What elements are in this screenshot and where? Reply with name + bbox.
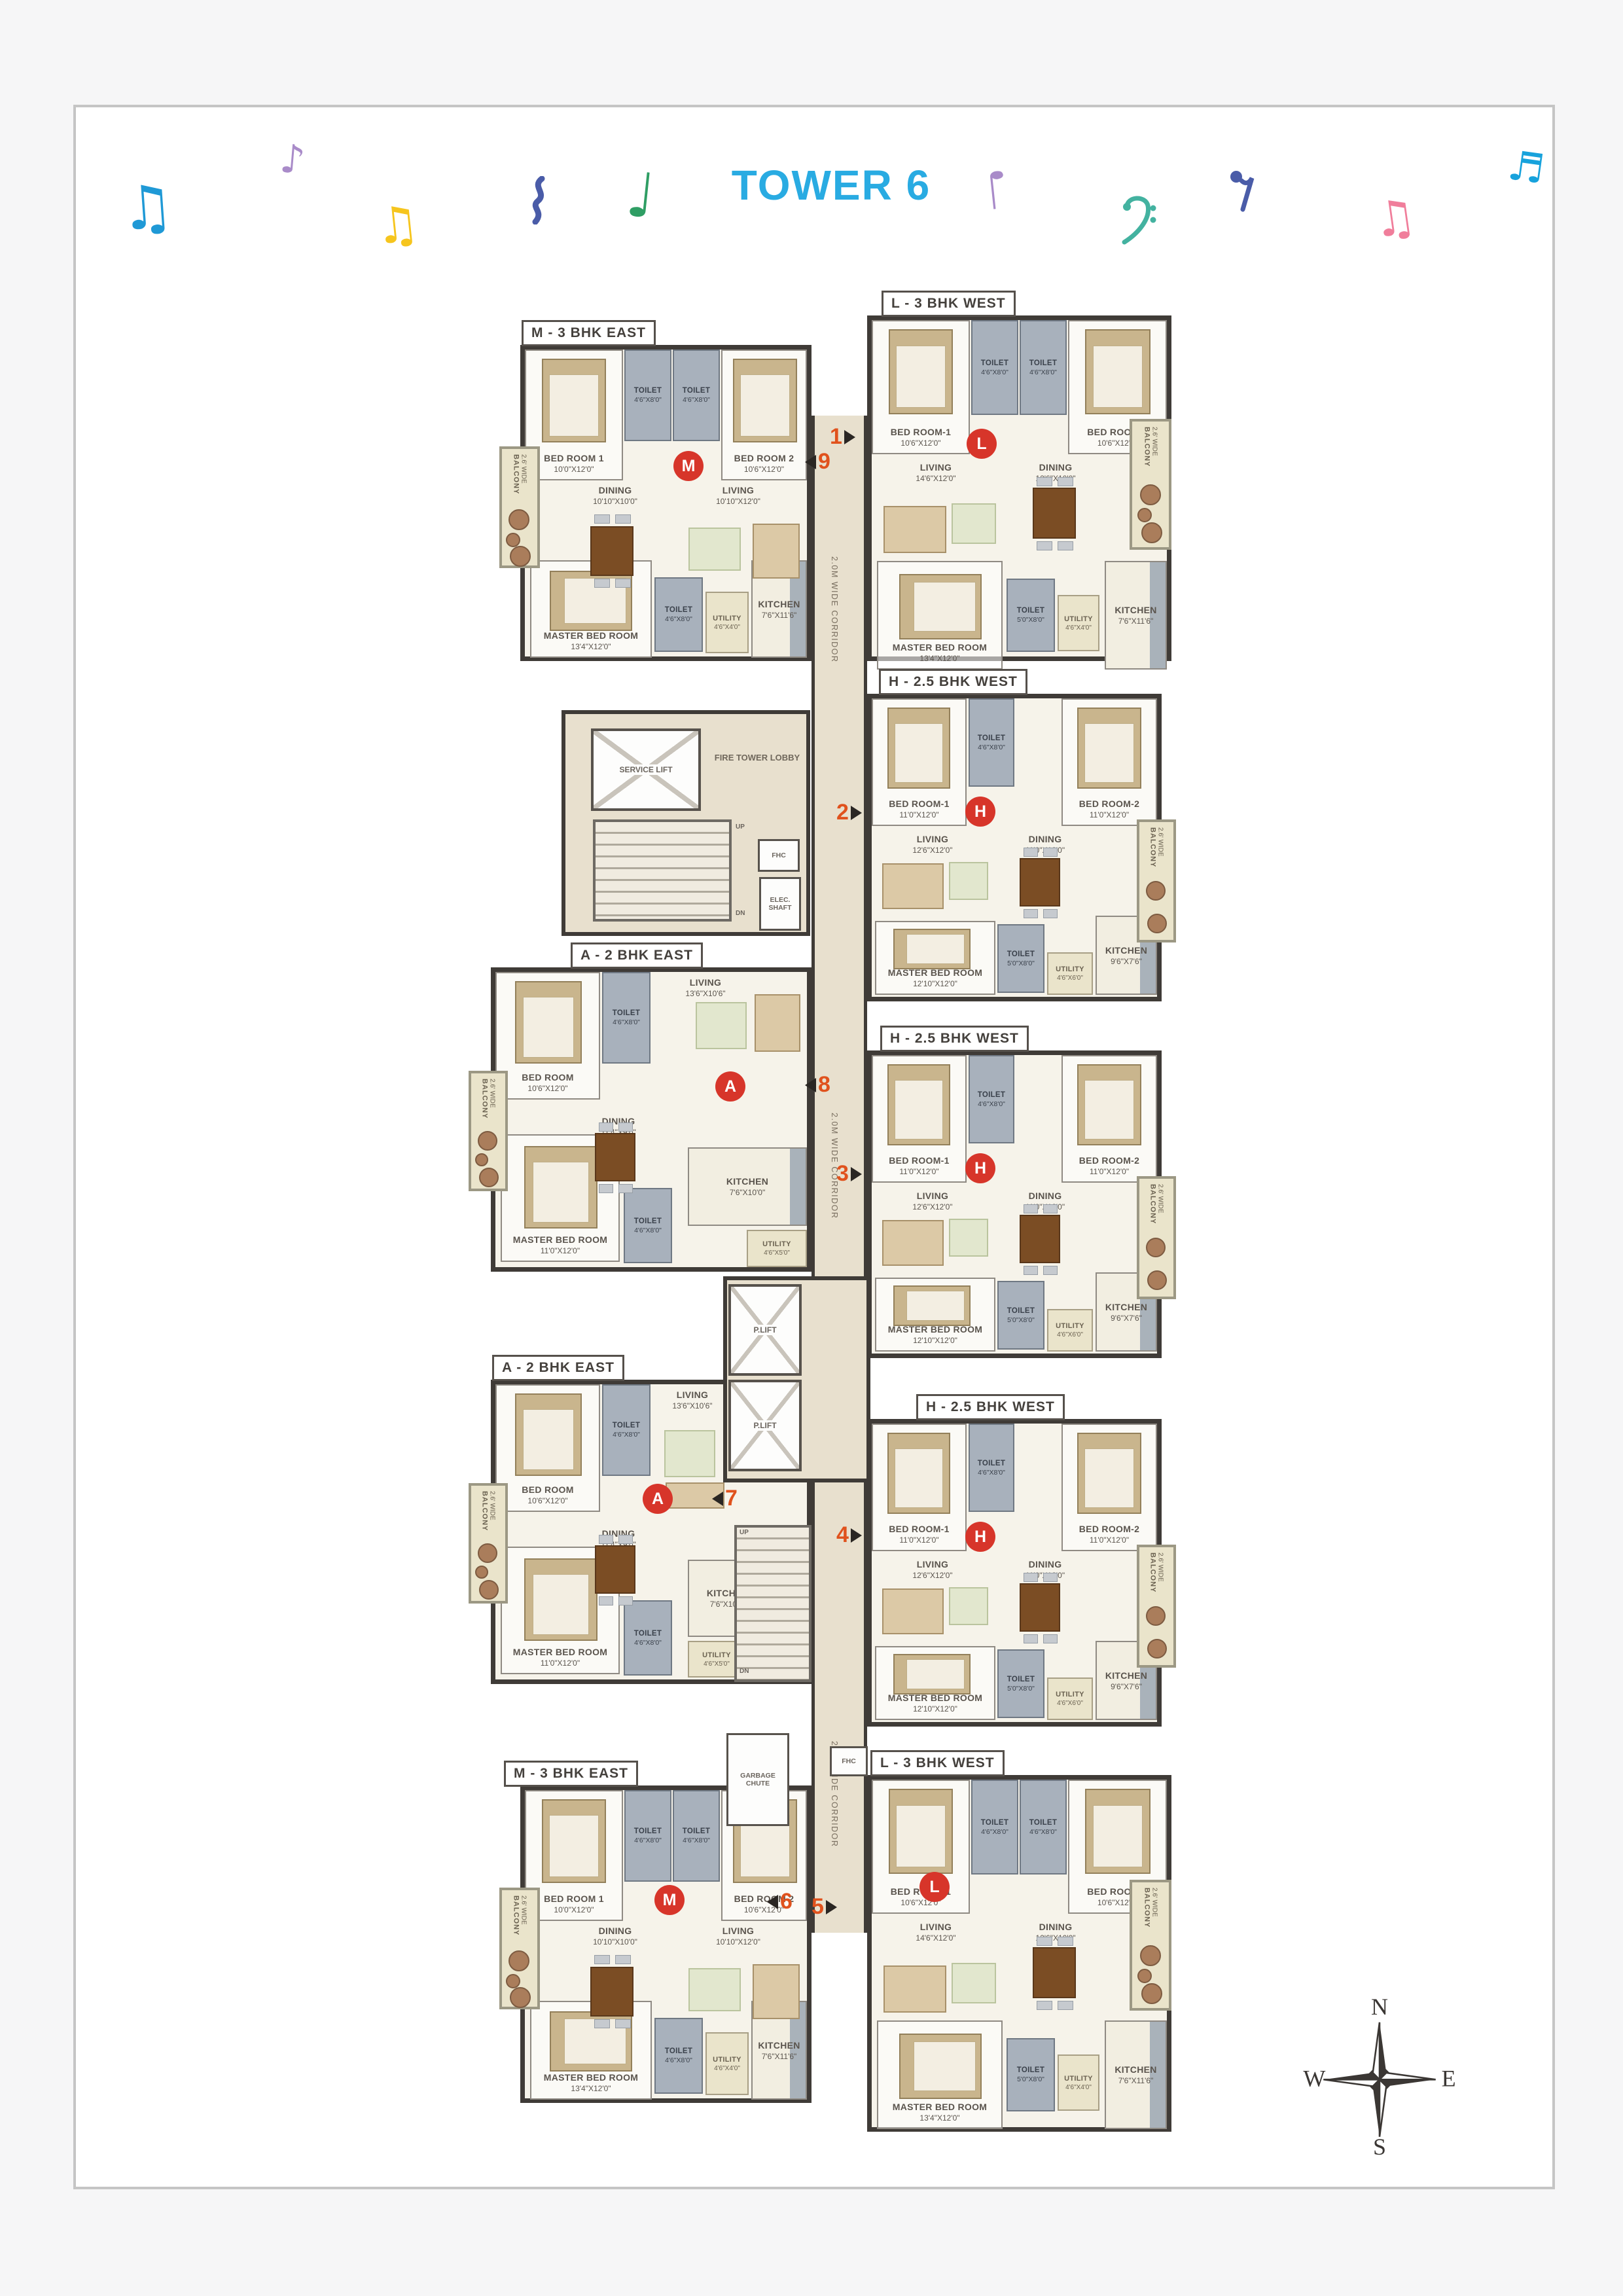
dining-table-icon	[1020, 1583, 1060, 1632]
chair-icon	[599, 1122, 613, 1132]
rug-icon	[664, 1430, 715, 1477]
room-toilet: TOILET4'6"X8'0"	[654, 577, 703, 652]
flat-number-marker: 1	[830, 424, 855, 450]
bed-icon	[1085, 1789, 1150, 1874]
unit-h-2p5bhk-west-1: BED ROOM-111'0"X12'0" TOILET4'6"X8'0" BE…	[867, 694, 1162, 1001]
bed-icon	[515, 981, 582, 1064]
music-note-icon: ♪	[278, 139, 306, 180]
room-utility: UTILITY4'6"X6'0"	[1047, 1309, 1093, 1352]
room-toilet: TOILET4'6"X8'0"	[969, 698, 1014, 787]
room-toilet: TOILET4'6"X8'0"	[673, 1790, 720, 1882]
chair-icon	[618, 1535, 633, 1544]
room-bed-room-1: BED ROOM-110'6"X12'0"	[872, 320, 970, 454]
room-bed-room-1: BED ROOM-111'0"X12'0"	[872, 1055, 967, 1183]
chair-icon	[1024, 1204, 1038, 1213]
balcony-chair-icon	[1140, 484, 1161, 505]
unit-m-3bhk-east-1: BED ROOM 110'0"X12'0" TOILET4'6"X8'0" TO…	[520, 345, 811, 661]
room-balcony: BALCONY2.6' WIDE	[469, 1483, 508, 1604]
chair-icon	[1043, 1204, 1058, 1213]
bed-icon	[1077, 708, 1141, 789]
room-toilet: TOILET4'6"X8'0"	[602, 972, 651, 1064]
dining-table-icon	[1020, 858, 1060, 906]
balcony-chair-icon	[510, 546, 531, 567]
stairs-dn-label: DN	[740, 1668, 749, 1675]
unit-letter-badge: H	[965, 797, 995, 827]
rug-icon	[696, 1002, 747, 1049]
bed-icon	[887, 708, 950, 789]
bed-icon	[887, 1064, 950, 1145]
music-note-icon: ♬	[1505, 145, 1547, 190]
room-balcony: BALCONY2.6' WIDE	[499, 446, 540, 568]
flat-number-marker: 7	[712, 1486, 738, 1511]
compass-north-label: N	[1371, 1994, 1388, 2020]
room-balcony: BALCONY2.6' WIDE	[1137, 1545, 1176, 1668]
room-balcony: BALCONY2.6' WIDE	[469, 1071, 508, 1191]
balcony-chair-icon	[1147, 1639, 1167, 1659]
room-toilet: TOILET5'0"X8'0"	[1007, 2038, 1055, 2111]
chair-icon	[1043, 1634, 1058, 1643]
elec-shaft-box: ELEC. SHAFT	[759, 877, 801, 931]
unit-h-2p5bhk-west-2: BED ROOM-111'0"X12'0" TOILET4'6"X8'0" BE…	[867, 1050, 1162, 1358]
passenger-lift-2: P.LIFT	[728, 1380, 802, 1471]
balcony-chair-icon	[1147, 1270, 1167, 1290]
chair-icon	[618, 1184, 633, 1193]
dining-table-icon	[1033, 1947, 1076, 1998]
balcony-chair-icon	[1146, 881, 1166, 901]
sofa-icon	[882, 1220, 944, 1266]
unit-l-3bhk-west-1: BED ROOM-110'6"X12'0" TOILET4'6"X8'0" TO…	[867, 315, 1171, 661]
chair-icon	[1024, 848, 1038, 857]
chair-icon	[1037, 1937, 1052, 1946]
room-master-bed-room: MASTER BED ROOM13'4"X12'0"	[877, 561, 1003, 670]
balcony-chair-icon	[479, 1580, 499, 1600]
unit-label: M - 3 BHK EAST	[522, 320, 656, 346]
chair-icon	[1037, 2001, 1052, 2010]
room-master-bed-room: MASTER BED ROOM12'10"X12'0"	[875, 921, 995, 995]
chair-icon	[615, 2019, 631, 2028]
unit-letter-badge: L	[967, 429, 997, 459]
chair-icon	[1043, 848, 1058, 857]
room-bed-room-1: BED ROOM-111'0"X12'0"	[872, 698, 967, 826]
room-toilet: TOILET4'6"X8'0"	[1020, 1780, 1067, 1874]
arrow-left-icon	[712, 1492, 723, 1506]
chair-icon	[594, 2019, 610, 2028]
dining-table-icon	[1033, 488, 1076, 539]
bed-icon	[542, 359, 606, 442]
sofa-icon	[753, 524, 800, 579]
unit-label: L - 3 BHK WEST	[870, 1750, 1005, 1776]
bed-icon	[899, 2034, 982, 2099]
chair-icon	[599, 1184, 613, 1193]
room-living: LIVING13'6"X10'6"	[656, 1388, 728, 1424]
room-kitchen: KITCHEN7'6"X10'0"	[688, 1147, 807, 1226]
chair-icon	[1037, 477, 1052, 486]
room-utility: UTILITY4'6"X4'0"	[1058, 595, 1099, 651]
room-kitchen: KITCHEN7'6"X11'6"	[1105, 2020, 1167, 2129]
sofa-icon	[882, 863, 944, 909]
eighth-rest-icon	[1228, 168, 1255, 213]
room-living: LIVING10'10"X12'0"	[681, 1924, 796, 1961]
passenger-lift-1: P.LIFT	[728, 1284, 802, 1376]
room-toilet: TOILET4'6"X8'0"	[969, 1424, 1014, 1512]
room-bed-room-1: BED ROOM-111'0"X12'0"	[872, 1424, 967, 1551]
fhc-box: FHC	[758, 839, 800, 872]
music-note-icon: ♫	[372, 198, 422, 253]
music-note-icon: ♫	[118, 176, 177, 240]
sofa-icon	[883, 1965, 946, 2013]
room-toilet: TOILET5'0"X8'0"	[997, 1649, 1044, 1718]
room-utility: UTILITY4'6"X6'0"	[1047, 952, 1093, 995]
chair-icon	[594, 579, 610, 588]
room-toilet: TOILET4'6"X8'0"	[624, 1188, 672, 1263]
rug-icon	[688, 528, 741, 571]
room-bed-room-2: BED ROOM 210'6"X12'0"	[721, 350, 807, 480]
bed-icon	[733, 359, 797, 442]
room-utility: UTILITY4'6"X4'0"	[1058, 2054, 1099, 2111]
flat-number-marker: 8	[805, 1072, 830, 1098]
chair-icon	[615, 1955, 631, 1964]
garbage-chute: GARBAGE CHUTE	[726, 1733, 789, 1826]
dining-table-icon	[1020, 1215, 1060, 1263]
balcony-chair-icon	[479, 1168, 499, 1187]
dining-table-icon	[595, 1545, 635, 1594]
balcony-table-icon	[1137, 1969, 1152, 1983]
chair-icon	[1058, 541, 1073, 550]
room-toilet: TOILET4'6"X8'0"	[624, 1790, 671, 1882]
room-bed-room-2: BED ROOM-211'0"X12'0"	[1061, 698, 1157, 826]
room-toilet: TOILET5'0"X8'0"	[997, 924, 1044, 993]
room-toilet: TOILET4'6"X8'0"	[602, 1384, 651, 1476]
unit-letter-badge: A	[643, 1484, 673, 1514]
unit-l-3bhk-west-2: BED ROOM-110'6"X12'0" TOILET4'6"X8'0" TO…	[867, 1775, 1171, 2132]
corridor-label: 2.0M WIDE CORRIDOR	[830, 556, 839, 662]
room-toilet: TOILET4'6"X8'0"	[969, 1055, 1014, 1143]
dining-table-icon	[595, 1133, 635, 1181]
arrow-right-icon	[851, 806, 862, 820]
unit-letter-badge: H	[965, 1153, 995, 1183]
room-living: LIVING14'6"X12'0"	[877, 461, 995, 497]
chair-icon	[1024, 1573, 1038, 1582]
flat-number-marker: 5	[811, 1894, 837, 1920]
unit-label: A - 2 BHK EAST	[492, 1355, 624, 1381]
unit-label: H - 2.5 BHK WEST	[879, 669, 1027, 695]
room-living: LIVING14'6"X12'0"	[877, 1920, 995, 1957]
sofa-icon	[755, 994, 800, 1052]
balcony-chair-icon	[1141, 522, 1162, 543]
rug-icon	[952, 1963, 996, 2003]
squiggle-note-icon	[525, 176, 551, 224]
chair-icon	[1043, 1266, 1058, 1275]
stairs-up-label: UP	[736, 823, 745, 831]
chair-icon	[1058, 1937, 1073, 1946]
unit-h-2p5bhk-west-3: BED ROOM-111'0"X12'0" TOILET4'6"X8'0" BE…	[867, 1419, 1162, 1727]
room-balcony: BALCONY2.6' WIDE	[499, 1888, 540, 2009]
rug-icon	[688, 1968, 741, 2011]
service-lift: SERVICE LIFT	[591, 728, 701, 811]
bass-clef-icon	[1120, 192, 1157, 247]
compass-east-label: E	[1442, 2066, 1456, 2092]
arrow-right-icon	[851, 1167, 862, 1181]
chair-icon	[599, 1535, 613, 1544]
unit-letter-badge: L	[919, 1872, 950, 1902]
room-balcony: BALCONY2.6' WIDE	[1137, 819, 1176, 942]
chair-icon	[1043, 909, 1058, 918]
flat-number-marker: 4	[836, 1522, 862, 1548]
room-utility: UTILITY4'6"X4'0"	[705, 2032, 749, 2095]
bed-icon	[893, 1654, 971, 1695]
bed-icon	[893, 1285, 971, 1326]
fire-tower-lobby-label: FIRE TOWER LOBBY	[708, 753, 806, 763]
flat-number-marker: 3	[836, 1161, 862, 1187]
balcony-chair-icon	[1141, 1983, 1162, 2004]
balcony-chair-icon	[1146, 1238, 1166, 1257]
bed-icon	[1077, 1064, 1141, 1145]
room-toilet: TOILET4'6"X8'0"	[1020, 320, 1067, 415]
room-living: LIVING10'10"X12'0"	[681, 484, 796, 520]
flat-number-marker: 9	[805, 449, 830, 475]
room-utility: UTILITY4'6"X4'0"	[705, 592, 749, 653]
sofa-icon	[753, 1964, 800, 2019]
staircase-2	[734, 1525, 811, 1682]
room-bed-room: BED ROOM10'6"X12'0"	[495, 972, 600, 1100]
bed-icon	[887, 1433, 950, 1514]
chair-icon	[1037, 541, 1052, 550]
fhc-box: FHC	[830, 1746, 868, 1776]
bed-icon	[524, 1558, 597, 1641]
arrow-left-icon	[767, 1895, 778, 1909]
unit-letter-badge: H	[965, 1522, 995, 1552]
dining-table-icon	[590, 526, 633, 576]
sofa-icon	[883, 506, 946, 553]
chair-icon	[615, 514, 631, 524]
arrow-right-icon	[844, 430, 855, 444]
balcony-table-icon	[475, 1153, 488, 1166]
room-toilet: TOILET4'6"X8'0"	[971, 1780, 1018, 1874]
room-toilet: TOILET4'6"X8'0"	[624, 1600, 672, 1676]
unit-label: A - 2 BHK EAST	[571, 942, 703, 969]
balcony-table-icon	[475, 1566, 488, 1579]
balcony-chair-icon	[478, 1543, 497, 1563]
room-toilet: TOILET4'6"X8'0"	[624, 350, 671, 441]
staircase	[593, 819, 732, 922]
room-bed-room-2: BED ROOM-211'0"X12'0"	[1061, 1055, 1157, 1183]
room-kitchen: KITCHEN7'6"X11'6"	[1105, 561, 1167, 670]
balcony-chair-icon	[1146, 1606, 1166, 1626]
rug-icon	[952, 503, 996, 544]
balcony-table-icon	[506, 1974, 520, 1988]
room-balcony: BALCONY2.6' WIDE	[1137, 1176, 1176, 1299]
chair-icon	[615, 579, 631, 588]
room-master-bed-room: MASTER BED ROOM12'10"X12'0"	[875, 1278, 995, 1352]
room-master-bed-room: MASTER BED ROOM13'4"X12'0"	[877, 2020, 1003, 2129]
unit-letter-badge: M	[673, 451, 704, 481]
unit-m-3bhk-east-2: BED ROOM 110'0"X12'0" TOILET4'6"X8'0" TO…	[520, 1785, 811, 2103]
balcony-chair-icon	[478, 1131, 497, 1151]
unit-a-2bhk-east-1: BED ROOM10'6"X12'0" TOILET4'6"X8'0" LIVI…	[491, 967, 811, 1272]
bed-icon	[515, 1393, 582, 1476]
bed-icon	[524, 1146, 597, 1229]
bed-icon	[1077, 1433, 1141, 1514]
room-toilet: TOILET5'0"X8'0"	[997, 1281, 1044, 1350]
balcony-chair-icon	[1147, 914, 1167, 933]
room-toilet: TOILET4'6"X8'0"	[971, 320, 1018, 415]
stairs-up-label: UP	[740, 1529, 749, 1536]
compass-south-label: S	[1373, 2134, 1386, 2160]
room-balcony: BALCONY2.6' WIDE	[1130, 1880, 1171, 2011]
brochure-page: TOWER 6 ♫ ♪ ♫ ♩ ♩ ♫ ♬ 2.0M WIDE CORRIDOR…	[0, 0, 1623, 2296]
bed-icon	[899, 574, 982, 639]
chair-icon	[1024, 909, 1038, 918]
room-toilet: TOILET5'0"X8'0"	[1007, 579, 1055, 652]
room-utility: UTILITY4'6"X5'0"	[747, 1230, 807, 1267]
room-master-bed-room: MASTER BED ROOM12'10"X12'0"	[875, 1646, 995, 1720]
chair-icon	[1024, 1266, 1038, 1275]
bed-icon	[893, 929, 971, 969]
sofa-icon	[882, 1588, 944, 1634]
chair-icon	[1043, 1573, 1058, 1582]
flat-number-marker: 2	[836, 800, 862, 825]
room-bed-room-2: BED ROOM-211'0"X12'0"	[1061, 1424, 1157, 1551]
room-toilet: TOILET4'6"X8'0"	[654, 2018, 703, 2094]
room-balcony: BALCONY2.6' WIDE	[1130, 419, 1171, 550]
unit-label: H - 2.5 BHK WEST	[880, 1026, 1029, 1052]
unit-label: H - 2.5 BHK WEST	[916, 1394, 1065, 1420]
balcony-chair-icon	[510, 1987, 531, 2008]
page-title: TOWER 6	[648, 161, 1014, 209]
arrow-left-icon	[805, 1078, 816, 1092]
chair-icon	[599, 1596, 613, 1605]
flat-number-marker: 6	[767, 1889, 793, 1914]
arrow-left-icon	[805, 455, 816, 469]
compass-west-label: W	[1303, 2066, 1325, 2092]
rug-icon	[949, 862, 988, 900]
balcony-chair-icon	[508, 1950, 529, 1971]
rug-icon	[949, 1219, 988, 1257]
unit-letter-badge: A	[715, 1071, 745, 1102]
balcony-table-icon	[506, 533, 520, 547]
bed-icon	[1085, 329, 1150, 414]
unit-label: L - 3 BHK WEST	[882, 291, 1016, 317]
chair-icon	[594, 1955, 610, 1964]
arrow-right-icon	[826, 1900, 837, 1914]
compass-rose: N S W E	[1301, 1982, 1458, 2172]
unit-letter-badge: M	[654, 1885, 685, 1915]
bed-icon	[542, 1799, 606, 1883]
chair-icon	[1058, 2001, 1073, 2010]
arrow-right-icon	[851, 1528, 862, 1543]
room-utility: UTILITY4'6"X6'0"	[1047, 1677, 1093, 1720]
chair-icon	[618, 1596, 633, 1605]
room-bed-room: BED ROOM10'6"X12'0"	[495, 1384, 600, 1512]
balcony-chair-icon	[508, 509, 529, 530]
room-toilet: TOILET4'6"X8'0"	[673, 350, 720, 441]
balcony-table-icon	[1137, 508, 1152, 522]
music-note-icon: ♫	[1370, 192, 1419, 246]
chair-icon	[594, 514, 610, 524]
unit-label: M - 3 BHK EAST	[504, 1761, 638, 1787]
chair-icon	[1058, 477, 1073, 486]
rug-icon	[949, 1587, 988, 1625]
bed-icon	[889, 329, 953, 414]
dining-table-icon	[590, 1967, 633, 2017]
balcony-chair-icon	[1140, 1945, 1161, 1966]
stairs-dn-label: DN	[736, 910, 745, 917]
chair-icon	[1024, 1634, 1038, 1643]
bed-icon	[889, 1789, 953, 1874]
chair-icon	[618, 1122, 633, 1132]
